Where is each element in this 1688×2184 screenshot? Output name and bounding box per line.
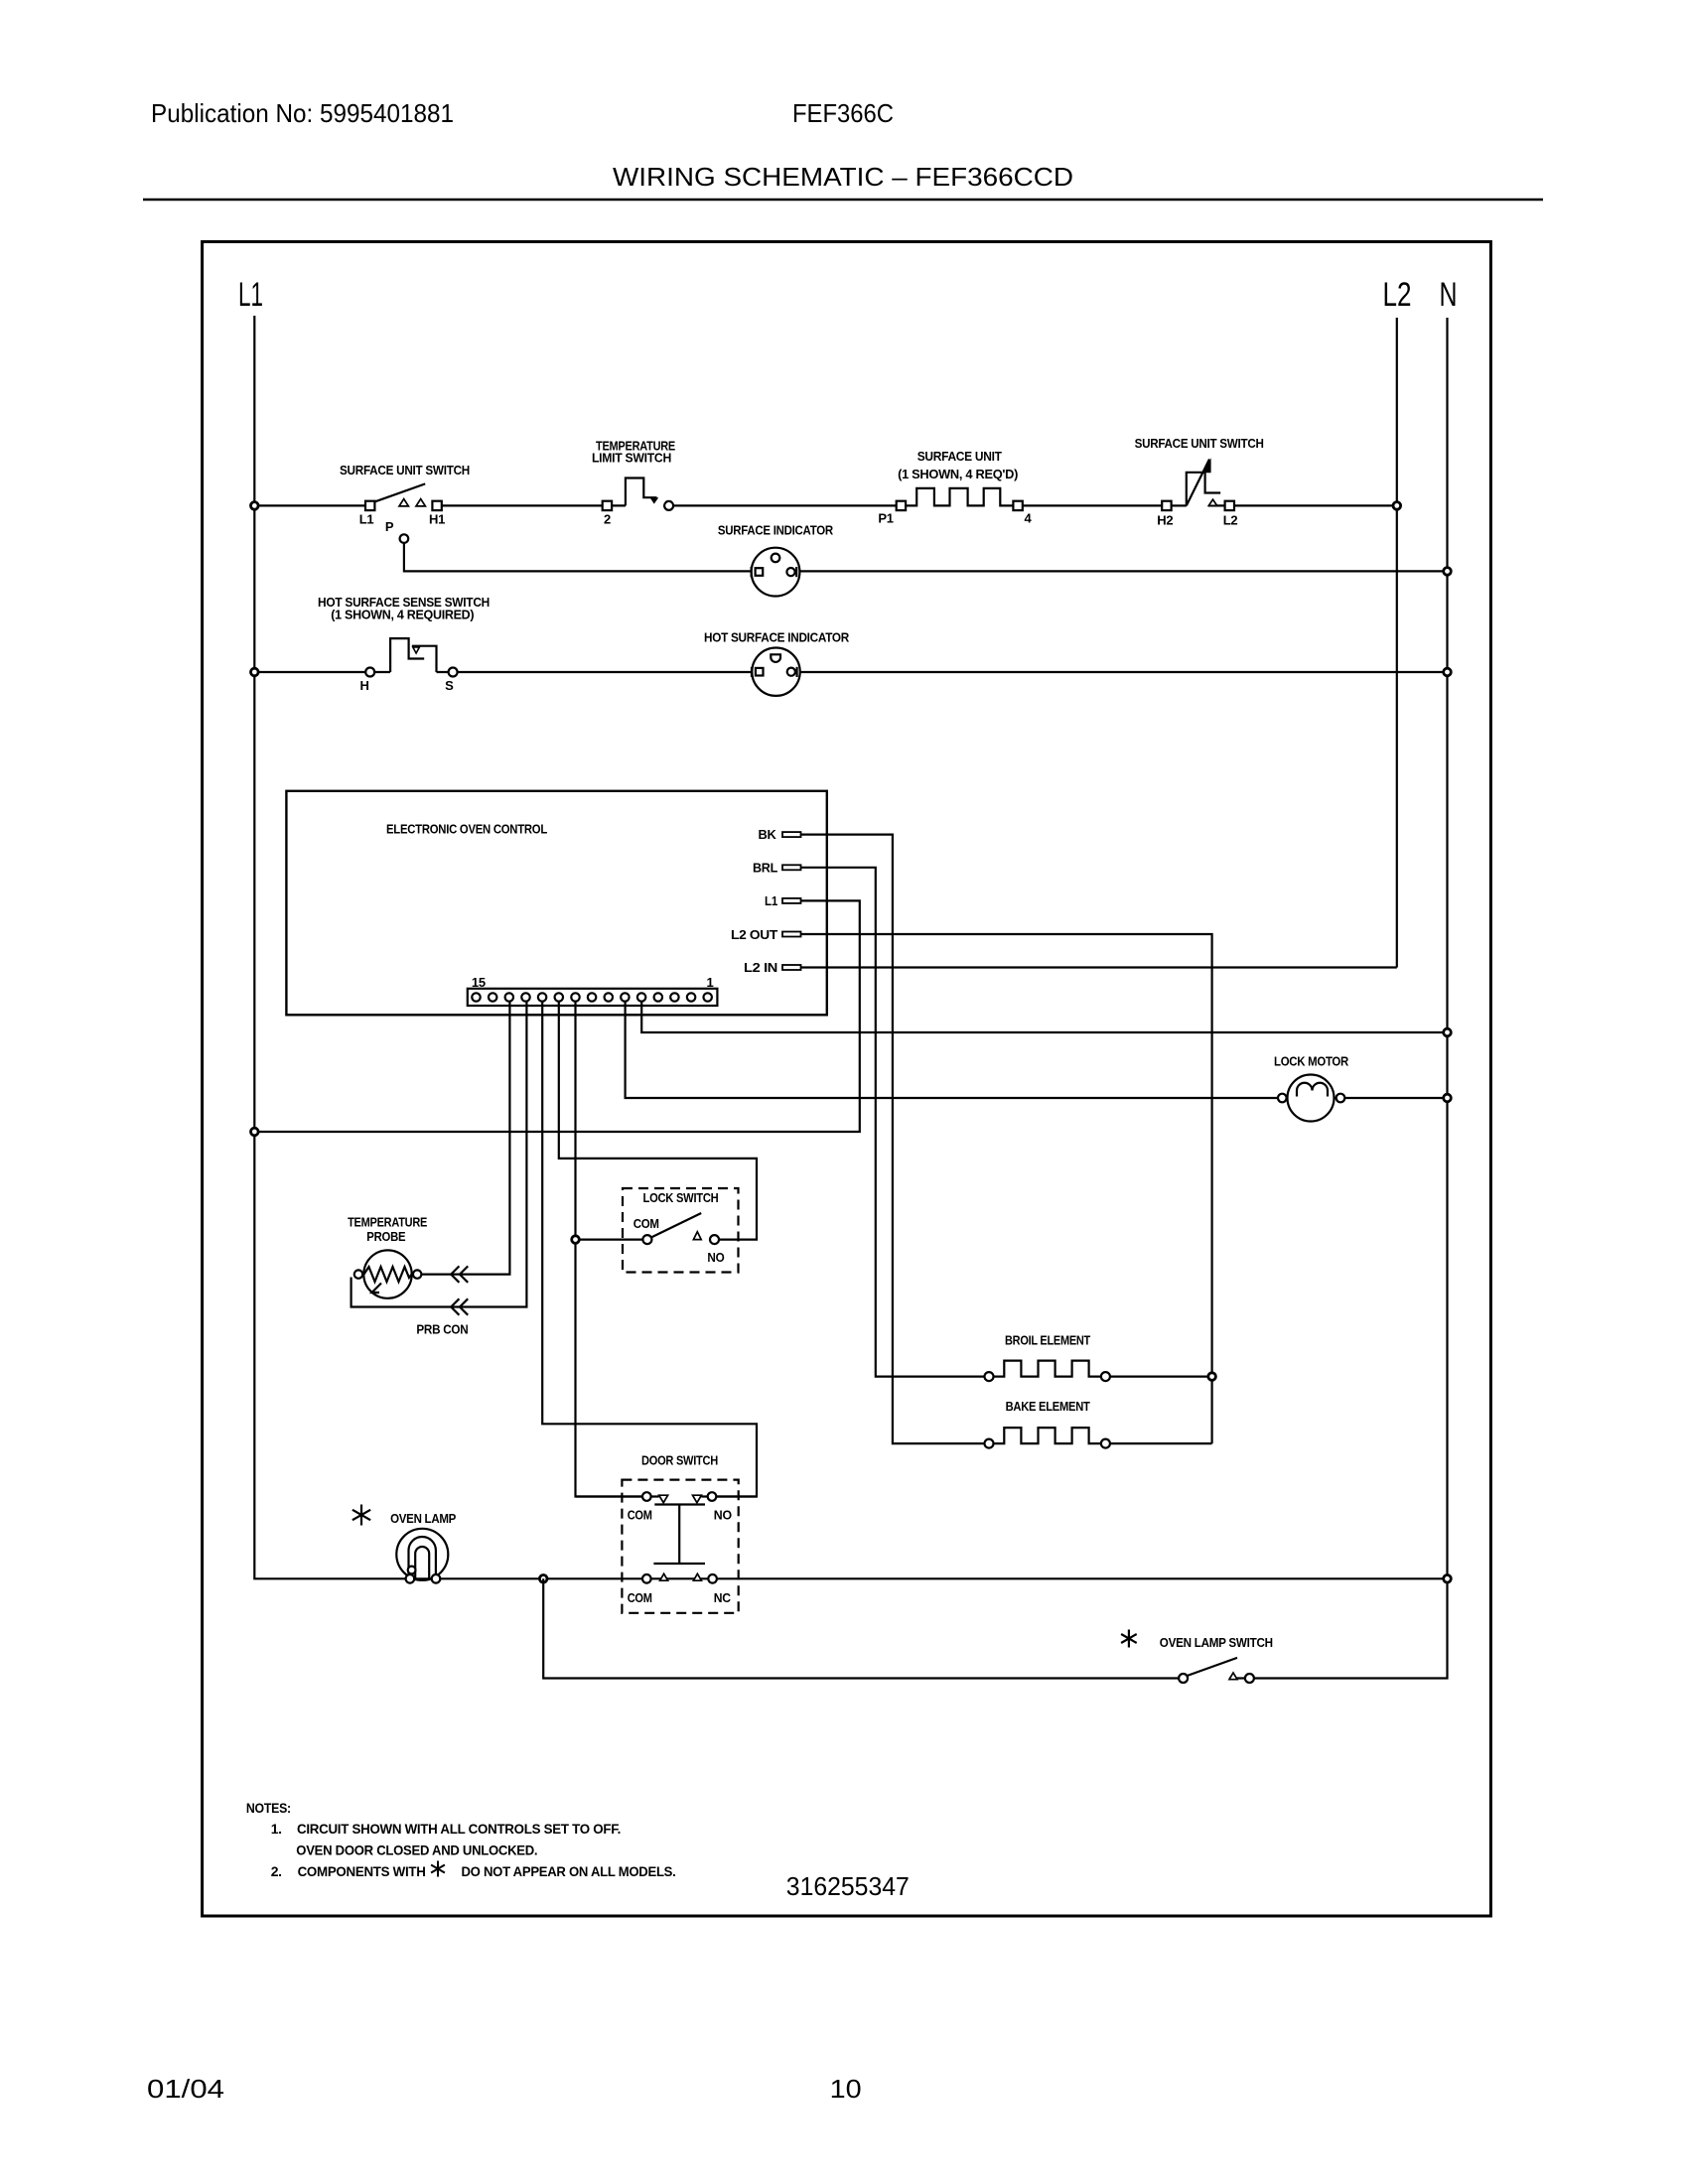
svg-text:H2: H2 [1157, 513, 1173, 528]
svg-text:15: 15 [472, 975, 486, 990]
svg-text:SURFACE UNIT SWITCH: SURFACE UNIT SWITCH [1135, 436, 1264, 451]
svg-text:316255347: 316255347 [786, 1871, 910, 1901]
svg-text:BRL: BRL [753, 861, 777, 876]
svg-text:COMPONENTS WITH: COMPONENTS WITH [298, 1863, 426, 1879]
svg-text:LIMIT SWITCH: LIMIT SWITCH [592, 451, 671, 466]
svg-text:HOT SURFACE INDICATOR: HOT SURFACE INDICATOR [704, 630, 850, 645]
svg-text:10: 10 [830, 2074, 862, 2104]
svg-text:SURFACE INDICATOR: SURFACE INDICATOR [718, 523, 834, 538]
svg-text:BROIL ELEMENT: BROIL ELEMENT [1005, 1333, 1090, 1348]
svg-text:H: H [359, 678, 368, 693]
svg-text:LOCK SWITCH: LOCK SWITCH [643, 1190, 719, 1205]
svg-text:P1: P1 [878, 511, 893, 526]
svg-text:L2 IN: L2 IN [744, 960, 777, 975]
svg-text:COM: COM [628, 1590, 652, 1605]
svg-text:PROBE: PROBE [366, 1229, 406, 1244]
svg-text:OVEN DOOR CLOSED AND UNLOCKED.: OVEN DOOR CLOSED AND UNLOCKED. [296, 1843, 537, 1858]
svg-text:FEF366C: FEF366C [792, 98, 894, 128]
svg-text:L1: L1 [765, 893, 777, 908]
svg-text:NC: NC [714, 1590, 732, 1605]
svg-text:4: 4 [1025, 511, 1033, 526]
svg-text:SURFACE UNIT: SURFACE UNIT [917, 449, 1002, 464]
svg-text:ELECTRONIC OVEN CONTROL: ELECTRONIC OVEN CONTROL [386, 822, 547, 837]
svg-text:NO: NO [714, 1508, 732, 1523]
svg-text:PRB CON: PRB CON [416, 1322, 468, 1337]
svg-text:1.: 1. [271, 1821, 282, 1837]
svg-text:COM: COM [633, 1216, 659, 1231]
svg-text:COM: COM [628, 1508, 652, 1523]
svg-text:DOOR SWITCH: DOOR SWITCH [641, 1453, 718, 1468]
svg-text:01/04: 01/04 [147, 2074, 224, 2104]
svg-text:BAKE ELEMENT: BAKE ELEMENT [1006, 1399, 1090, 1414]
svg-text:1: 1 [707, 975, 714, 990]
svg-text:DO NOT APPEAR ON ALL MODELS.: DO NOT APPEAR ON ALL MODELS. [462, 1863, 676, 1879]
svg-text:L2: L2 [1223, 513, 1238, 528]
svg-text:P: P [385, 519, 394, 534]
svg-text:S: S [445, 678, 454, 693]
svg-text:L2 OUT: L2 OUT [731, 927, 777, 942]
svg-text:2.: 2. [271, 1863, 282, 1879]
svg-text:N: N [1440, 276, 1458, 314]
svg-text:OVEN LAMP: OVEN LAMP [390, 1511, 457, 1526]
svg-text:H1: H1 [429, 512, 445, 527]
svg-text:NOTES:: NOTES: [246, 1800, 291, 1816]
svg-text:OVEN LAMP SWITCH: OVEN LAMP SWITCH [1160, 1635, 1273, 1650]
svg-text:Publication No: 5995401881: Publication No: 5995401881 [151, 98, 454, 128]
svg-text:2: 2 [604, 512, 611, 527]
svg-text:LOCK MOTOR: LOCK MOTOR [1274, 1054, 1349, 1069]
svg-text:(1 SHOWN, 4 REQ'D): (1 SHOWN, 4 REQ'D) [898, 467, 1018, 481]
svg-text:L1: L1 [359, 512, 374, 527]
svg-text:TEMPERATURE: TEMPERATURE [348, 1215, 428, 1230]
svg-text:L2: L2 [1383, 276, 1412, 314]
svg-text:SURFACE UNIT SWITCH: SURFACE UNIT SWITCH [340, 463, 470, 478]
svg-text:(1 SHOWN, 4 REQUIRED): (1 SHOWN, 4 REQUIRED) [331, 608, 474, 622]
svg-text:BK: BK [759, 827, 777, 842]
svg-text:L1: L1 [238, 276, 263, 314]
svg-text:NO: NO [707, 1250, 724, 1265]
svg-text:WIRING SCHEMATIC – FEF366CCD: WIRING SCHEMATIC – FEF366CCD [613, 162, 1073, 192]
svg-text:CIRCUIT SHOWN WITH ALL CONTROL: CIRCUIT SHOWN WITH ALL CONTROLS SET TO O… [297, 1821, 621, 1837]
